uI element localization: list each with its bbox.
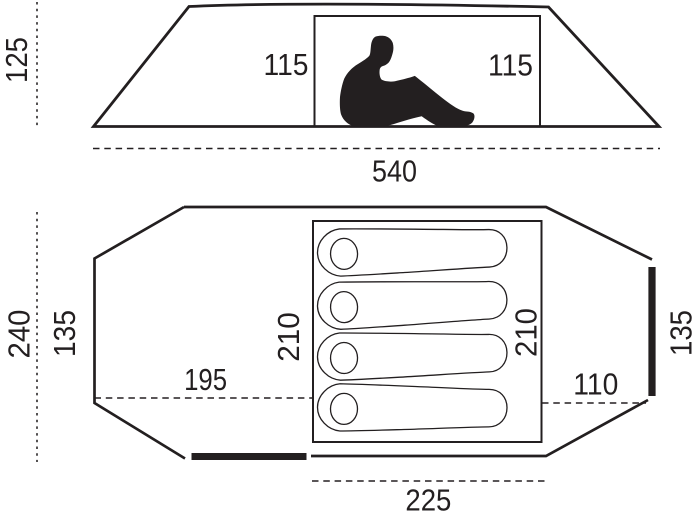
svg-text:135: 135 <box>664 310 696 356</box>
svg-text:115: 115 <box>488 47 533 82</box>
svg-text:210: 210 <box>509 308 544 357</box>
svg-text:210: 210 <box>271 312 306 362</box>
svg-text:115: 115 <box>264 47 309 82</box>
svg-text:540: 540 <box>372 153 417 188</box>
svg-text:225: 225 <box>405 483 451 518</box>
svg-text:125: 125 <box>0 37 34 83</box>
svg-text:110: 110 <box>573 367 618 402</box>
svg-text:240: 240 <box>2 310 37 359</box>
svg-text:195: 195 <box>184 362 227 397</box>
svg-text:135: 135 <box>47 310 82 357</box>
